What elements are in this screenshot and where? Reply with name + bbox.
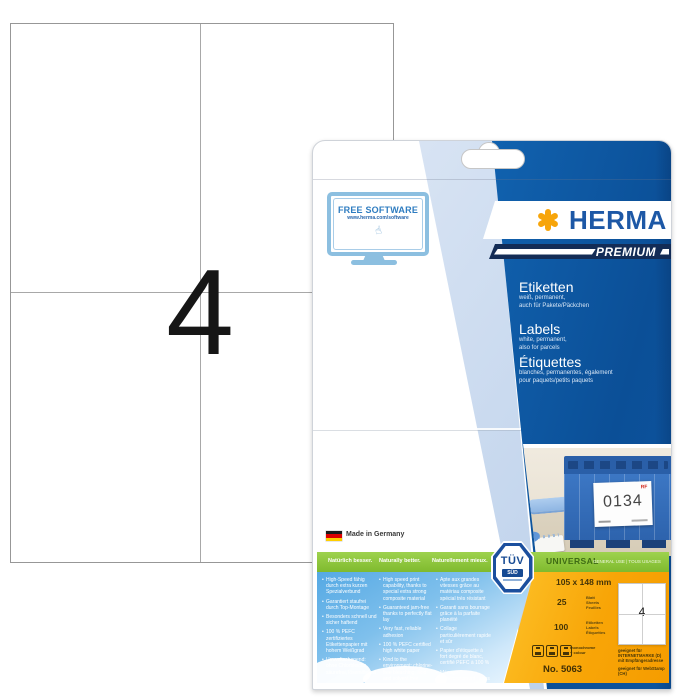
product-sub-de-2: auch für Pakete/Päckchen bbox=[519, 303, 589, 311]
tuv-decor-line bbox=[503, 579, 522, 581]
cloud bbox=[312, 658, 371, 688]
free-software-url: www.herma.com/software bbox=[334, 215, 422, 221]
crate-top-rim bbox=[564, 456, 672, 474]
sheet-count: 25 bbox=[557, 597, 566, 607]
mini-sheet-diagram: 4 bbox=[618, 583, 666, 645]
premium-stripe-left bbox=[494, 249, 596, 255]
unit-fr: Feuilles bbox=[586, 606, 601, 611]
hand-cursor-icon: ☝ bbox=[373, 223, 382, 237]
suitability-note-de: geeignet für INTERNETMARKE (D) mit Empfä… bbox=[618, 648, 668, 663]
feature-item: 100 % PEFC zertifiziertes Etikettenpapie… bbox=[322, 629, 377, 654]
crate-address-label: RF 0134 bbox=[593, 481, 653, 527]
product-sub-fr-1: blanches, permanentes, également bbox=[519, 370, 613, 378]
package-front: FREE SOFTWARE www.herma.com/software ☝ H… bbox=[312, 140, 672, 690]
laser-printer-icon bbox=[532, 645, 544, 657]
feature-item: Besonders schnell und sicher haftend bbox=[322, 614, 377, 626]
feature-item: Collage particulièrement rapide et sûr bbox=[436, 626, 491, 645]
product-sub-en-1: white, permanent, bbox=[519, 337, 567, 345]
hang-hole-patch bbox=[481, 150, 497, 159]
mini-sheet-label-count: 4 bbox=[619, 605, 665, 619]
feature-item: High speed print capability, thanks to s… bbox=[379, 577, 434, 602]
tuv-sued-text: SÜD bbox=[502, 569, 523, 577]
herma-flower-icon bbox=[535, 207, 561, 233]
item-number: No. 5063 bbox=[543, 664, 582, 675]
crate-foot bbox=[570, 540, 594, 548]
premium-band: PREMIUM bbox=[489, 244, 671, 259]
feature-item: 100 % PEFC certified high white paper bbox=[379, 642, 434, 654]
claim-fr: Naturellement mieux. bbox=[432, 558, 488, 564]
crate-body: RF 0134 bbox=[564, 474, 672, 540]
print-mode-note: monochrome + colour bbox=[570, 645, 596, 655]
tuv-sued-badge-icon: TÜV SÜD bbox=[491, 541, 534, 594]
crate-label-number: 0134 bbox=[594, 492, 653, 512]
feature-item: Garantiert staufrei durch Top-Montage bbox=[322, 599, 377, 611]
product-title-fr: Étiquettes bbox=[519, 355, 613, 370]
brand-band: HERMA bbox=[483, 201, 671, 239]
monitor-screen: FREE SOFTWARE www.herma.com/software ☝ bbox=[333, 198, 423, 250]
product-title-de: Etiketten bbox=[519, 280, 589, 295]
feature-item: Guaranteed jam-free thanks to perfectly … bbox=[379, 605, 434, 624]
application-photo: RF 0134 bbox=[518, 444, 671, 556]
cloud bbox=[435, 670, 487, 690]
crate-foot bbox=[606, 540, 630, 548]
free-software-title: FREE SOFTWARE bbox=[334, 205, 422, 215]
product-sub-de-1: weiß, permanent, bbox=[519, 295, 589, 303]
horizontal-crease-line bbox=[313, 430, 521, 431]
crate-label-mark-left bbox=[599, 520, 611, 522]
label-count-units: Etiketten Labels Étiquettes bbox=[586, 621, 605, 635]
feature-item: Papier d'étiquette à fort degré de blanc… bbox=[436, 648, 491, 667]
claim-de: Natürlich besser. bbox=[328, 558, 372, 564]
premium-stripe-right bbox=[660, 249, 669, 255]
label-size: 105 x 148 mm bbox=[556, 577, 611, 587]
universal-label: UNIVERSAL bbox=[546, 556, 599, 566]
feature-item: Very fast, reliable adhesion bbox=[379, 626, 434, 638]
printer-compatibility-icons bbox=[532, 645, 572, 657]
claim-en: Naturally better. bbox=[379, 558, 421, 564]
sheet-label-count: 4 bbox=[140, 217, 260, 407]
product-title-en: Labels bbox=[519, 322, 567, 337]
crate-foot bbox=[642, 540, 666, 548]
hang-tab-crease bbox=[313, 179, 671, 180]
product-sub-fr-2: pour paquets/petits paquets bbox=[519, 378, 613, 386]
monitor-icon: FREE SOFTWARE www.herma.com/software ☝ bbox=[327, 192, 429, 256]
product-packshot: 4 FREE SOFTWARE www.herma.com/software ☝ bbox=[0, 0, 700, 700]
monitor-base bbox=[351, 260, 397, 265]
tuv-text: TÜV bbox=[491, 555, 534, 567]
premium-label: PREMIUM bbox=[596, 245, 656, 259]
feature-item: Garanti sans bourrage grâce à la parfait… bbox=[436, 605, 491, 624]
universal-subtitle: GENERAL USE | TOUS USAGES bbox=[593, 559, 661, 564]
crate-handle-slots bbox=[568, 461, 668, 469]
label-count: 100 bbox=[554, 622, 568, 632]
suitability-note-ch: geeignet für WebStamp (CH) bbox=[618, 666, 668, 676]
crate-label-corner-mark: RF bbox=[641, 484, 648, 490]
product-sub-en-2: also for parcels bbox=[519, 345, 567, 353]
german-flag-icon bbox=[326, 531, 342, 541]
blue-crate: RF 0134 bbox=[564, 456, 672, 548]
crate-label-mark-right bbox=[632, 519, 648, 522]
brand-name: HERMA bbox=[569, 205, 667, 236]
copier-icon bbox=[546, 645, 558, 657]
unit-fr: Étiquettes bbox=[586, 631, 605, 636]
made-in-germany-label: Made in Germany bbox=[346, 531, 404, 538]
sheet-count-units: Blatt Sheets Feuilles bbox=[586, 596, 601, 610]
feature-item: Apte aux grandes vitesses grâce au matér… bbox=[436, 577, 491, 602]
feature-item: High-Speed fähig durch extra kurzen Spez… bbox=[322, 577, 377, 596]
